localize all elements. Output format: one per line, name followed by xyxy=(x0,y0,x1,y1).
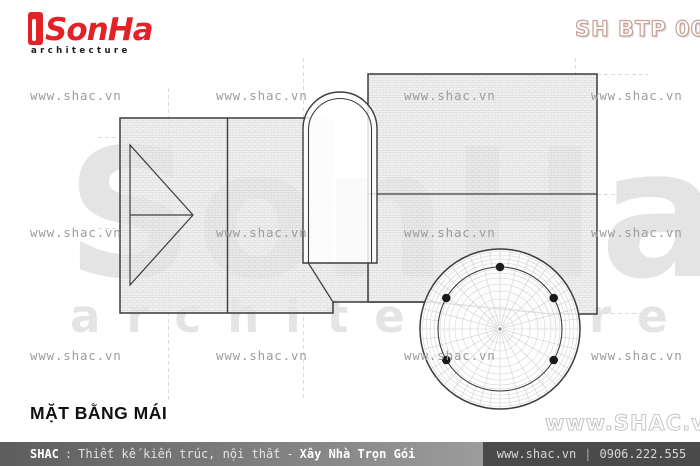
footer: SHAC : Thiết kế kiến trúc, nội thất - Xâ… xyxy=(0,442,700,466)
corner-watermark: www.SHAC.vn xyxy=(545,411,700,435)
watermark-tile: www.shac.vn xyxy=(30,225,122,240)
watermark-tile: www.shac.vn xyxy=(404,348,496,363)
logo-brand-text: SonHa xyxy=(45,17,153,45)
watermark-tile: www.shac.vn xyxy=(591,88,683,103)
footer-left: SHAC : Thiết kế kiến trúc, nội thất - Xâ… xyxy=(0,442,483,466)
watermark-tile: www.shac.vn xyxy=(30,348,122,363)
footer-highlight: Xây Nhà Trọn Gói xyxy=(300,447,416,461)
footer-phone: 0906.222.555 xyxy=(600,447,687,461)
dome-center-dot xyxy=(498,327,501,330)
footer-services: Thiết kế kiến trúc, nội thất xyxy=(78,447,280,461)
watermark-tile: www.shac.vn xyxy=(216,88,308,103)
footer-right: www.shac.vn | 0906.222.555 xyxy=(483,442,700,466)
doc-code: SH BTP 0038 xyxy=(575,17,700,41)
page-title: MẶT BẰNG MÁI xyxy=(30,403,167,424)
watermark-tile: www.shac.vn xyxy=(404,88,496,103)
watermark-tile: www.shac.vn xyxy=(30,88,122,103)
watermark-tile: www.shac.vn xyxy=(591,225,683,240)
watermark-tile: www.shac.vn xyxy=(216,348,308,363)
sonha-logo: SonHa architecture xyxy=(28,12,153,56)
watermark-tile: www.shac.vn xyxy=(404,225,496,240)
watermark-tile: www.shac.vn xyxy=(591,348,683,363)
dome-roof xyxy=(420,249,580,409)
footer-pipe: | xyxy=(584,447,591,461)
footer-website: www.shac.vn xyxy=(497,447,576,461)
logo-mark-icon xyxy=(28,12,43,45)
watermark-tile: www.shac.vn xyxy=(216,225,308,240)
arched-bay xyxy=(303,92,377,263)
page-root: { "header": { "logo_brand": "SonHa", "lo… xyxy=(0,0,700,466)
footer-separator: : xyxy=(65,447,72,461)
footer-brand: SHAC xyxy=(30,447,59,461)
footer-dash: - xyxy=(286,447,293,461)
